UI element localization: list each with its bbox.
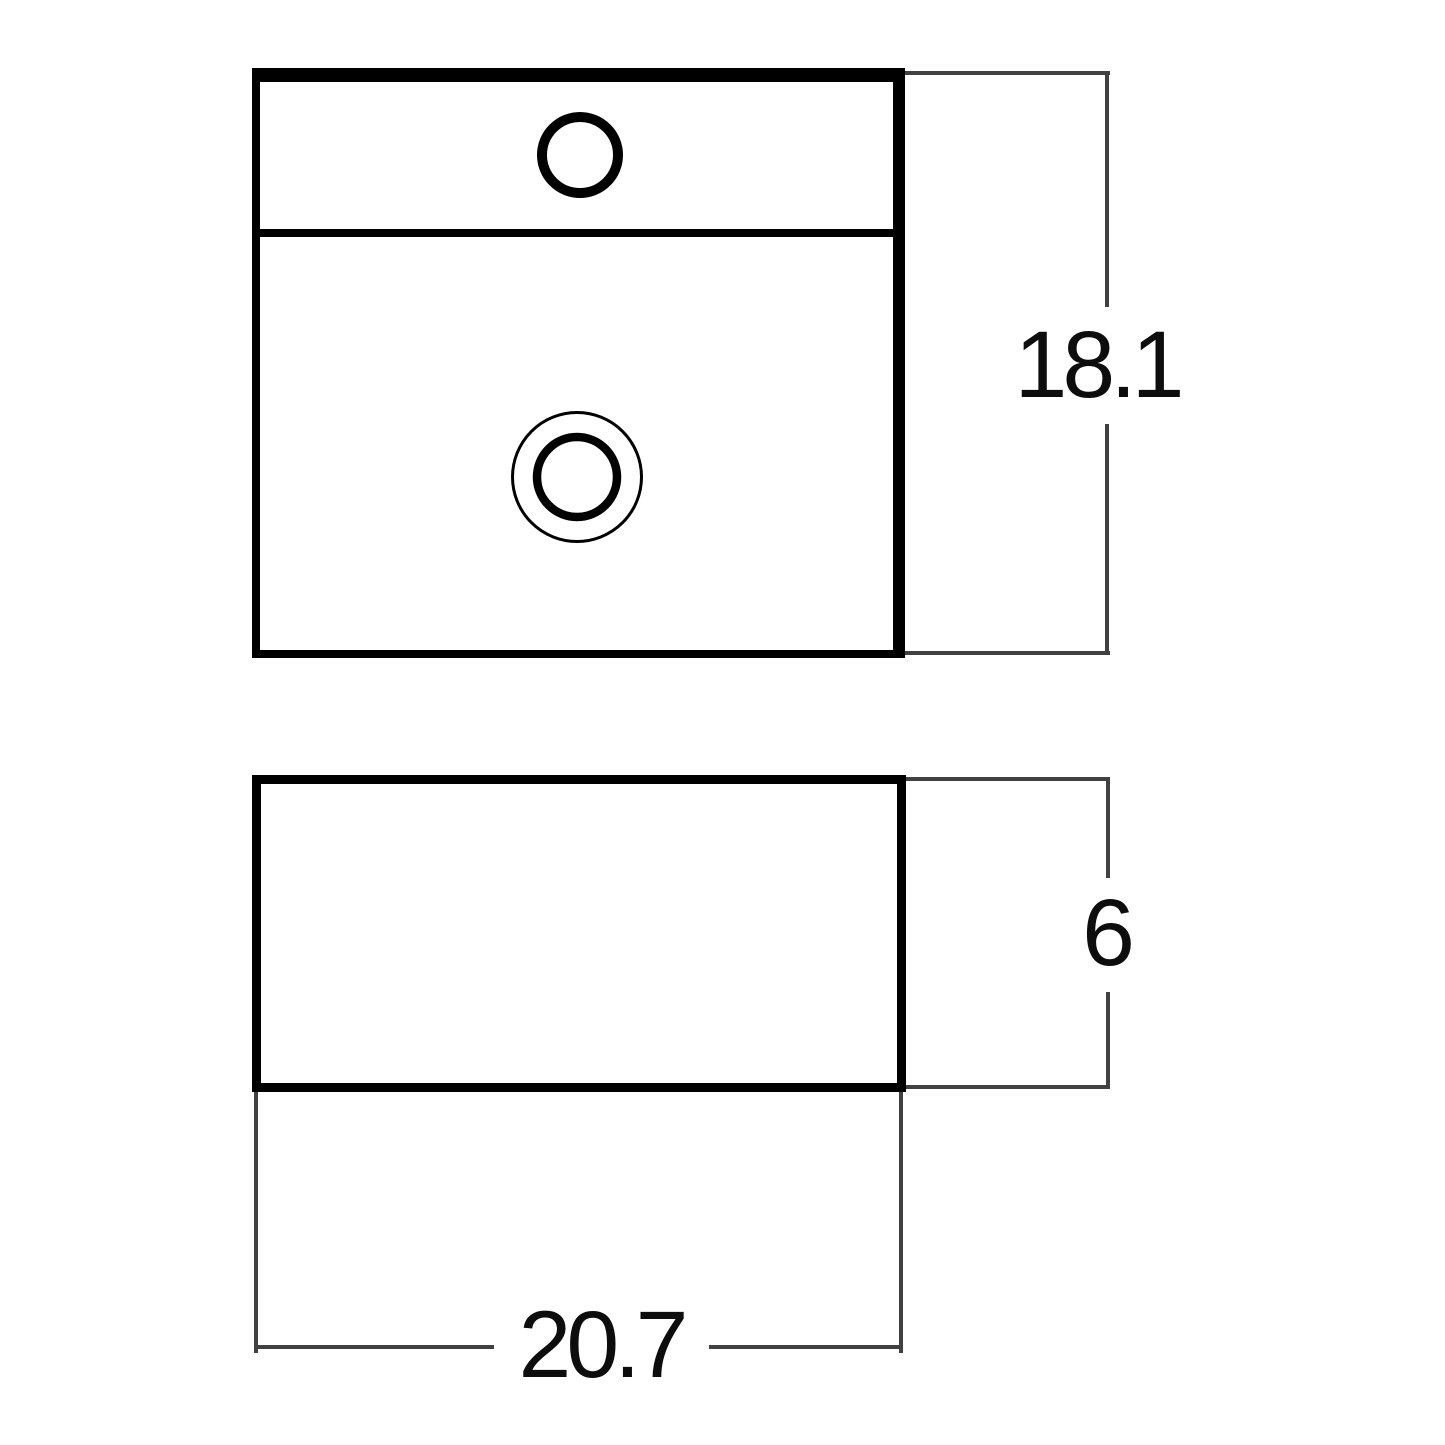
top-view-left-edge [252, 68, 260, 658]
top-view-front-edge [252, 650, 905, 658]
sink-dimension-drawing: 18.1 6 20.7 [0, 0, 1445, 1445]
drain-inner-ring [537, 437, 617, 517]
width-dimension-label: 20.7 [519, 1292, 685, 1398]
side-view-right-edge [897, 775, 906, 1092]
faucet-hole [542, 117, 618, 193]
side-view-left-edge [252, 775, 261, 1092]
side-view-top-edge [252, 775, 905, 784]
side-view-bottom-edge [252, 1083, 905, 1092]
top-view [252, 68, 905, 658]
top-view-back-edge [252, 68, 905, 82]
side-view [252, 775, 906, 1092]
top-view-right-edge [893, 68, 905, 658]
dimension-drawing-canvas: 18.1 6 20.7 [0, 0, 1445, 1445]
top-view-holes [513, 117, 642, 542]
height-dimension-label: 6 [1082, 880, 1131, 986]
drain-outer-ring [513, 413, 642, 542]
dimension-lines [254, 71, 1110, 1353]
depth-dimension-label: 18.1 [1015, 312, 1181, 418]
top-view-deck-divider [252, 229, 893, 237]
